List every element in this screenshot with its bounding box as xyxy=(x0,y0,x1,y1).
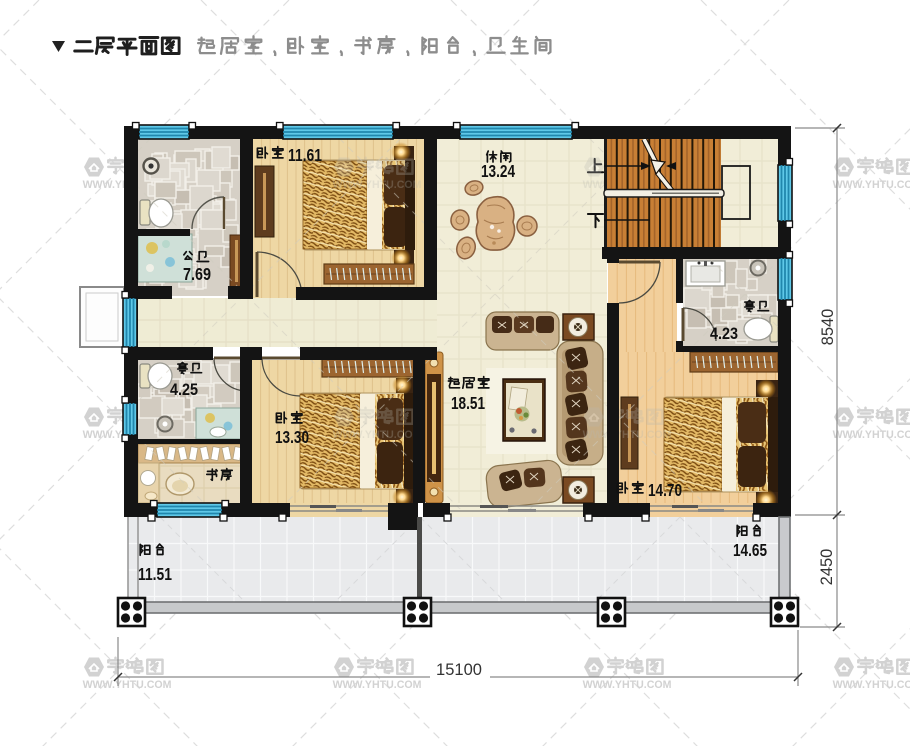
svg-text:WWW.YHTU.COM: WWW.YHTU.COM xyxy=(583,679,672,691)
svg-text:14.70: 14.70 xyxy=(648,480,682,500)
svg-text:13.24: 13.24 xyxy=(481,161,515,181)
svg-text:WWW.YHTU.COM: WWW.YHTU.COM xyxy=(333,429,422,441)
svg-text:11.51: 11.51 xyxy=(138,564,172,584)
svg-text:WWW.YHTU.COM: WWW.YHTU.COM xyxy=(583,429,672,441)
svg-text:4.25: 4.25 xyxy=(170,380,198,399)
svg-text:WWW.YHTU.COM: WWW.YHTU.COM xyxy=(333,179,422,191)
svg-text:11.61: 11.61 xyxy=(288,145,322,165)
svg-text:WWW.YHTU.COM: WWW.YHTU.COM xyxy=(83,679,172,691)
svg-text:WWW.YHTU.COM: WWW.YHTU.COM xyxy=(833,679,910,691)
svg-text:7.69: 7.69 xyxy=(183,264,211,284)
svg-text:2450: 2450 xyxy=(818,549,836,586)
svg-text:14.65: 14.65 xyxy=(733,540,767,560)
svg-text:4.23: 4.23 xyxy=(710,324,738,343)
svg-text:8540: 8540 xyxy=(819,309,837,346)
svg-text:WWW.YHTU.COM: WWW.YHTU.COM xyxy=(833,179,910,191)
svg-text:13.30: 13.30 xyxy=(275,427,309,447)
svg-text:WWW.YHTU.COM: WWW.YHTU.COM xyxy=(833,429,910,441)
svg-text:WWW.YHTU.COM: WWW.YHTU.COM xyxy=(333,679,422,691)
svg-text:15100: 15100 xyxy=(436,661,482,679)
svg-text:18.51: 18.51 xyxy=(451,393,485,413)
